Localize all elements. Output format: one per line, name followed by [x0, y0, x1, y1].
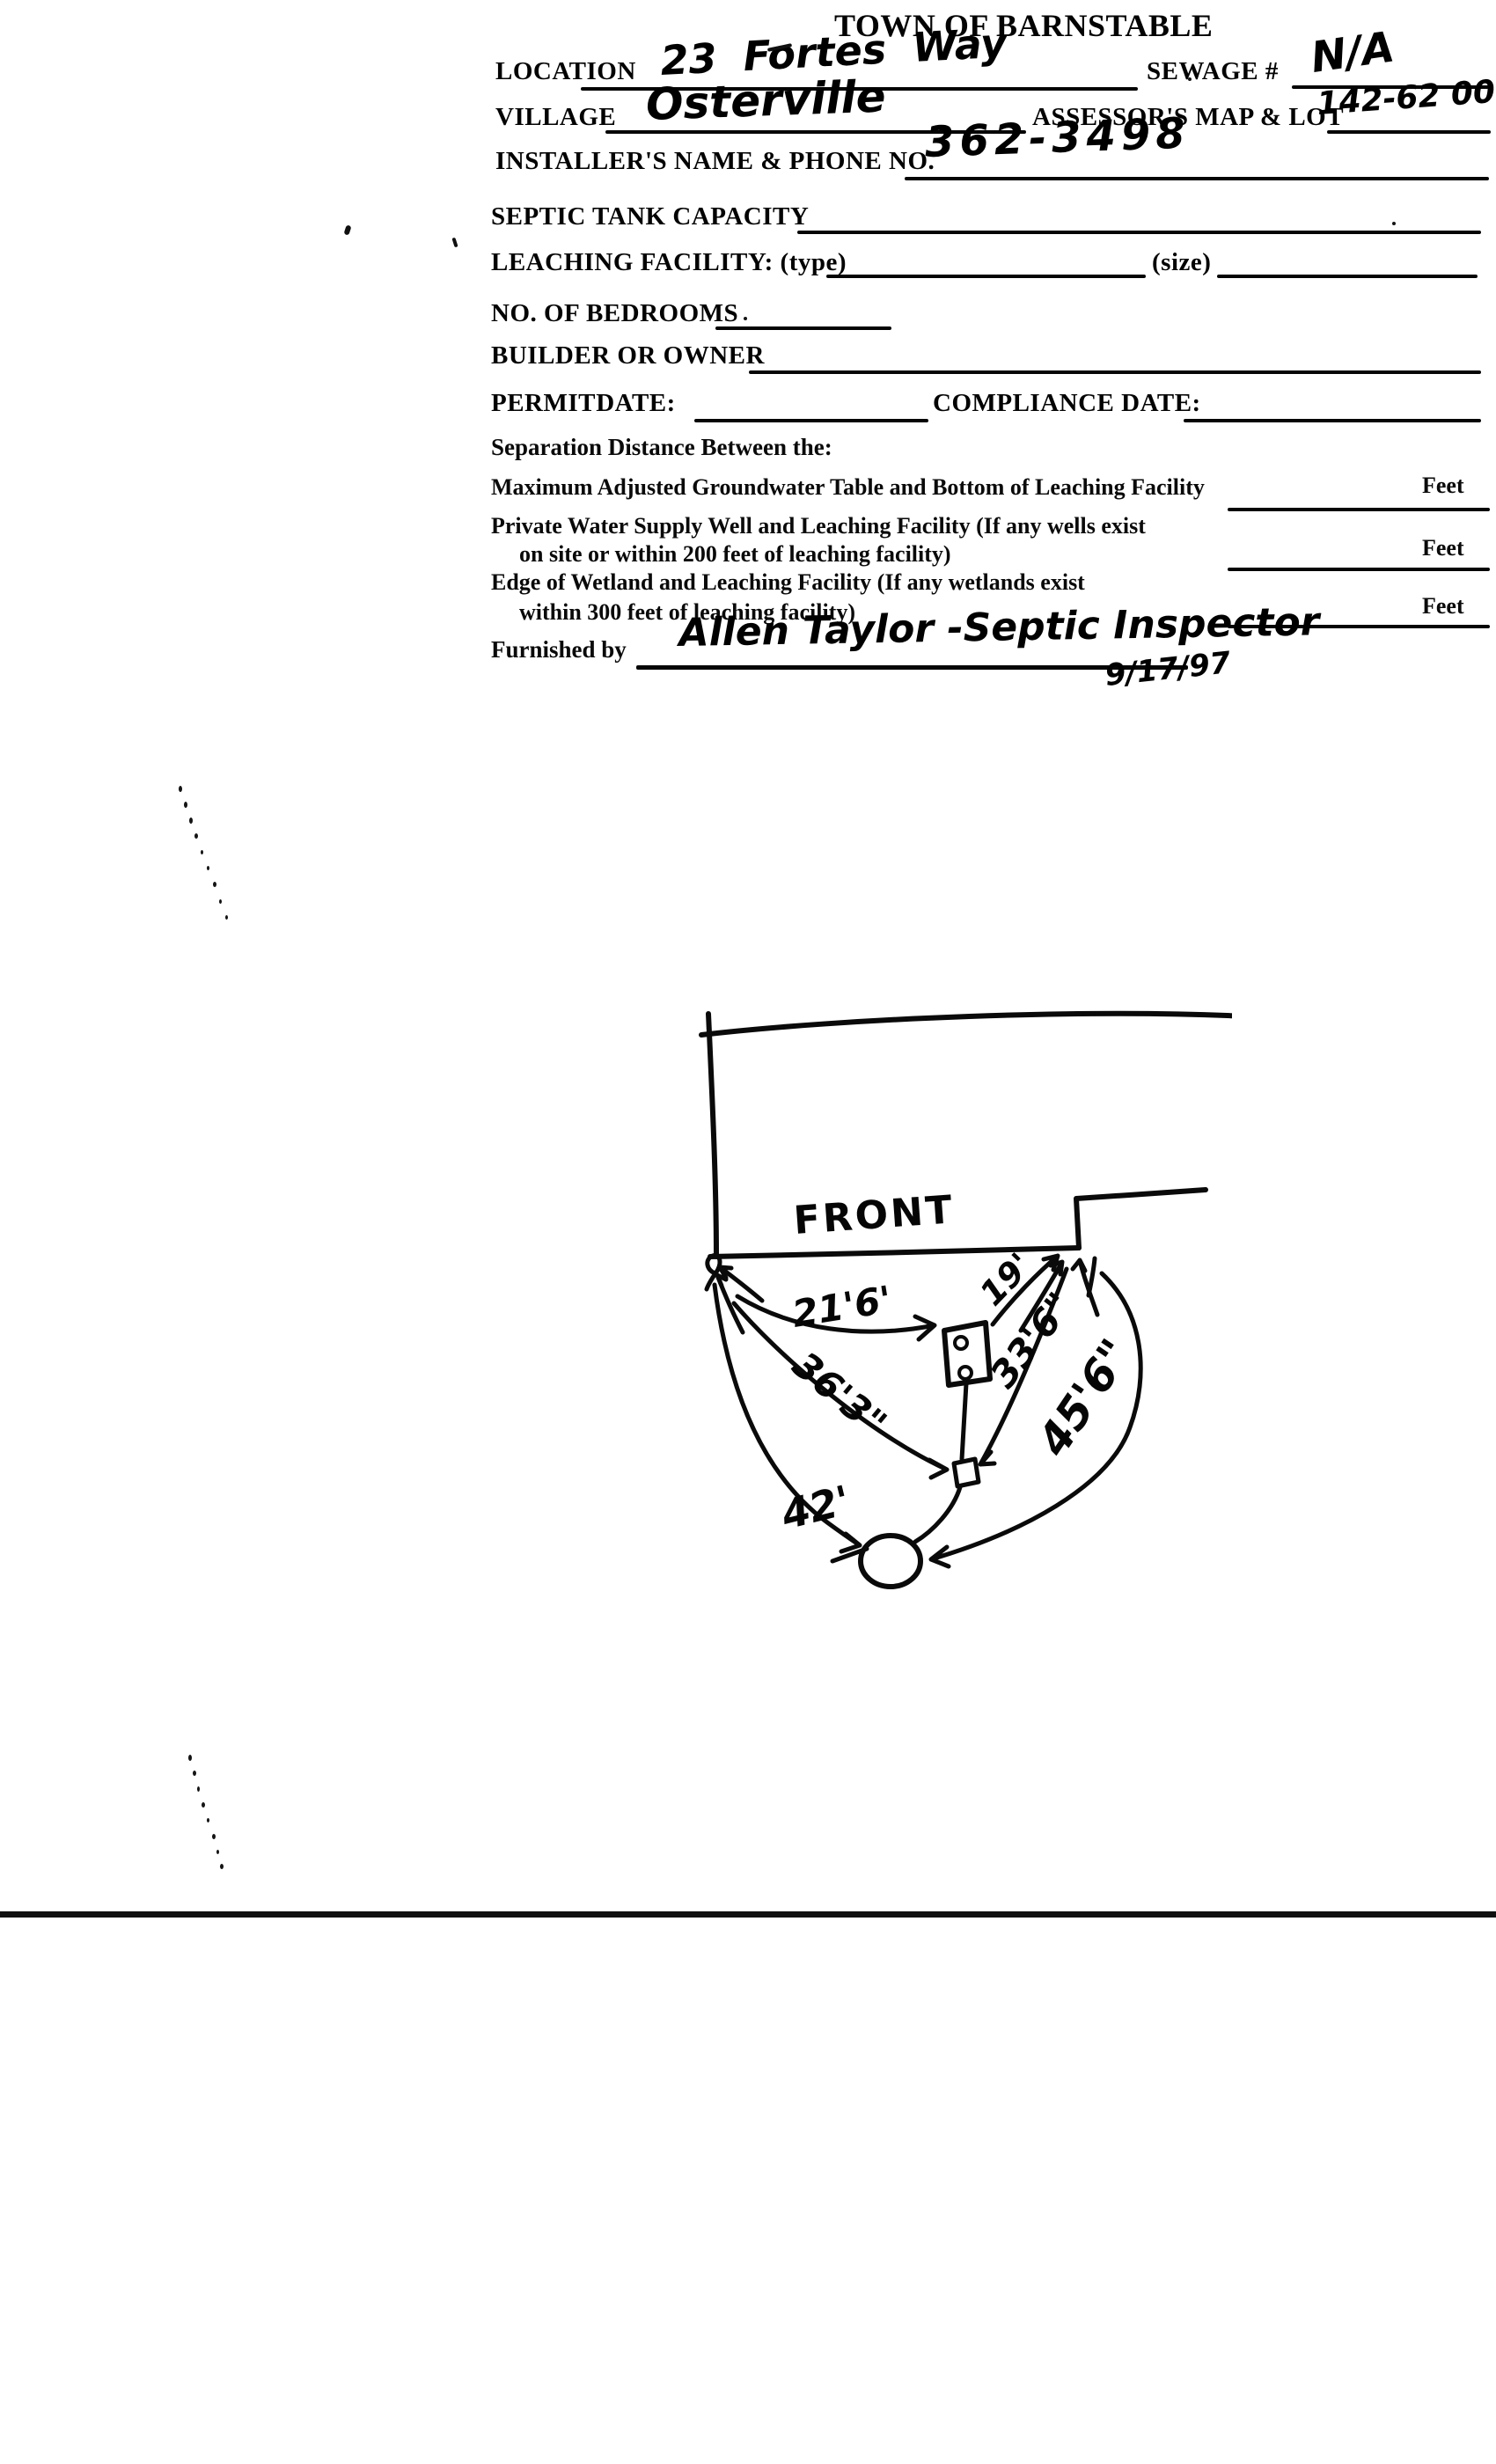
- bedrooms-underline: [715, 326, 891, 330]
- septic-tank-cover-1: [955, 1337, 967, 1349]
- separation-row3-text-line1: Edge of Wetland and Leaching Facility (I…: [491, 569, 1085, 596]
- separation-row1-underline: [1228, 508, 1490, 511]
- scan-streak-dot: [212, 1834, 216, 1839]
- village-label: VILLAGE: [495, 103, 616, 132]
- leaching-type-underline: [826, 275, 1146, 278]
- scan-streak-dot: [207, 866, 209, 870]
- compliance-date-label: COMPLIANCE DATE:: [933, 389, 1201, 418]
- scanned-septic-form-page: TOWN OF BARNSTABLE LOCATION 23 Fortes Wa…: [0, 0, 1496, 2464]
- leaching-size-label: (size): [1152, 248, 1211, 277]
- septic-tank-capacity-underline: [797, 231, 1481, 234]
- scan-streak-dot: [179, 786, 182, 792]
- separation-row1-unit: Feet: [1422, 473, 1464, 499]
- installer-label: INSTALLER'S NAME & PHONE NO.: [495, 147, 935, 176]
- separation-row2-text-line1: Private Water Supply Well and Leaching F…: [491, 513, 1146, 539]
- separation-row3-unit: Feet: [1422, 593, 1464, 620]
- building-front-wall: [710, 1248, 1079, 1257]
- separation-row1-text: Maximum Adjusted Groundwater Table and B…: [491, 474, 1205, 501]
- installer-underline: [905, 177, 1489, 180]
- leaching-facility-label: LEACHING FACILITY: (type): [491, 248, 847, 277]
- permit-date-underline: [694, 419, 928, 422]
- sewage-number-label: SEWAGE #: [1147, 57, 1279, 86]
- septic-tank-capacity-label: SEPTIC TANK CAPACITY: [491, 202, 809, 231]
- building-left-wall: [708, 1014, 716, 1257]
- furnished-by-handwritten-date: 9/17/97: [1104, 645, 1233, 693]
- scan-speckle: [744, 317, 747, 320]
- scan-streak-dot: [188, 1755, 192, 1761]
- scan-speckle: [343, 224, 351, 235]
- scan-streak-dot: [197, 1786, 200, 1792]
- building-top-wall: [701, 1014, 1232, 1035]
- building-step-wall: [1076, 1190, 1206, 1248]
- leaching-pit: [861, 1536, 920, 1587]
- septic-tank-cover-2: [959, 1367, 972, 1379]
- distribution-box: [954, 1459, 979, 1486]
- scan-streak-dot: [189, 818, 193, 824]
- pipe-dbox-to-pit: [915, 1487, 960, 1542]
- installer-handwritten-value: 362-3498: [924, 109, 1191, 167]
- scan-speckle: [1188, 77, 1192, 81]
- scan-streak-dot: [225, 915, 228, 920]
- compliance-date-underline: [1184, 419, 1481, 422]
- bedrooms-label: NO. OF BEDROOMS: [491, 299, 738, 328]
- dim-label-tank-to-house: 19': [972, 1245, 1039, 1313]
- sewage-number-handwritten-value: N/A: [1308, 22, 1397, 83]
- village-handwritten-value: Osterville: [645, 71, 887, 130]
- sketch-front-label: FRONT: [792, 1187, 956, 1243]
- builder-or-owner-label: BUILDER OR OWNER: [491, 341, 765, 370]
- scan-streak-dot: [194, 833, 198, 839]
- scan-streak-dot: [220, 1864, 224, 1869]
- pipe-tank-to-dbox: [962, 1383, 966, 1459]
- dim-label-corner-to-dbox: 36'3": [785, 1343, 895, 1445]
- dim-label-corner-to-tank: 21'6': [789, 1278, 895, 1336]
- leaching-size-underline: [1217, 275, 1478, 278]
- scan-streak-dot: [207, 1818, 209, 1822]
- scan-streak-dot: [202, 1802, 205, 1808]
- separation-heading: Separation Distance Between the:: [491, 434, 832, 461]
- scan-streak-dot: [201, 850, 203, 854]
- separation-row2-text-line2: on site or within 200 feet of leaching f…: [519, 541, 951, 568]
- scan-streak-dot: [184, 802, 187, 808]
- scan-separator-line: [0, 1911, 1496, 1918]
- furnished-by-label: Furnished by: [491, 636, 627, 664]
- scan-speckle: [451, 238, 458, 248]
- septic-tank: [944, 1323, 990, 1385]
- separation-row2-unit: Feet: [1422, 535, 1464, 561]
- assessors-map-lot-underline: [1327, 130, 1491, 134]
- location-label: LOCATION: [495, 57, 636, 86]
- step-corner-arrow-3: [1089, 1258, 1095, 1295]
- scan-speckle: [1392, 222, 1396, 225]
- separation-row2-underline: [1228, 568, 1490, 571]
- scan-streak-dot: [193, 1771, 196, 1776]
- scan-streak-dot: [213, 882, 216, 887]
- scan-streak-dot: [219, 899, 222, 904]
- permit-date-label: PERMIT DATE:: [491, 389, 676, 418]
- builder-or-owner-underline: [749, 370, 1481, 374]
- scan-streak-dot: [216, 1850, 219, 1854]
- site-sketch: FRONT 21'6' 19' 36'3" 33'6" 45'6" 42': [669, 986, 1232, 1637]
- assessors-map-lot-handwritten-value: 142-62 00: [1316, 74, 1496, 122]
